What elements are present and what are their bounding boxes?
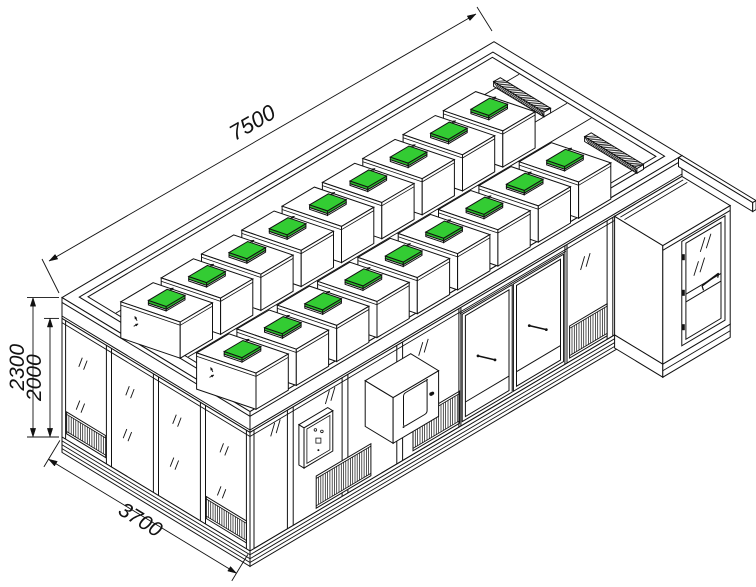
svg-text:2000: 2000 <box>23 354 46 402</box>
